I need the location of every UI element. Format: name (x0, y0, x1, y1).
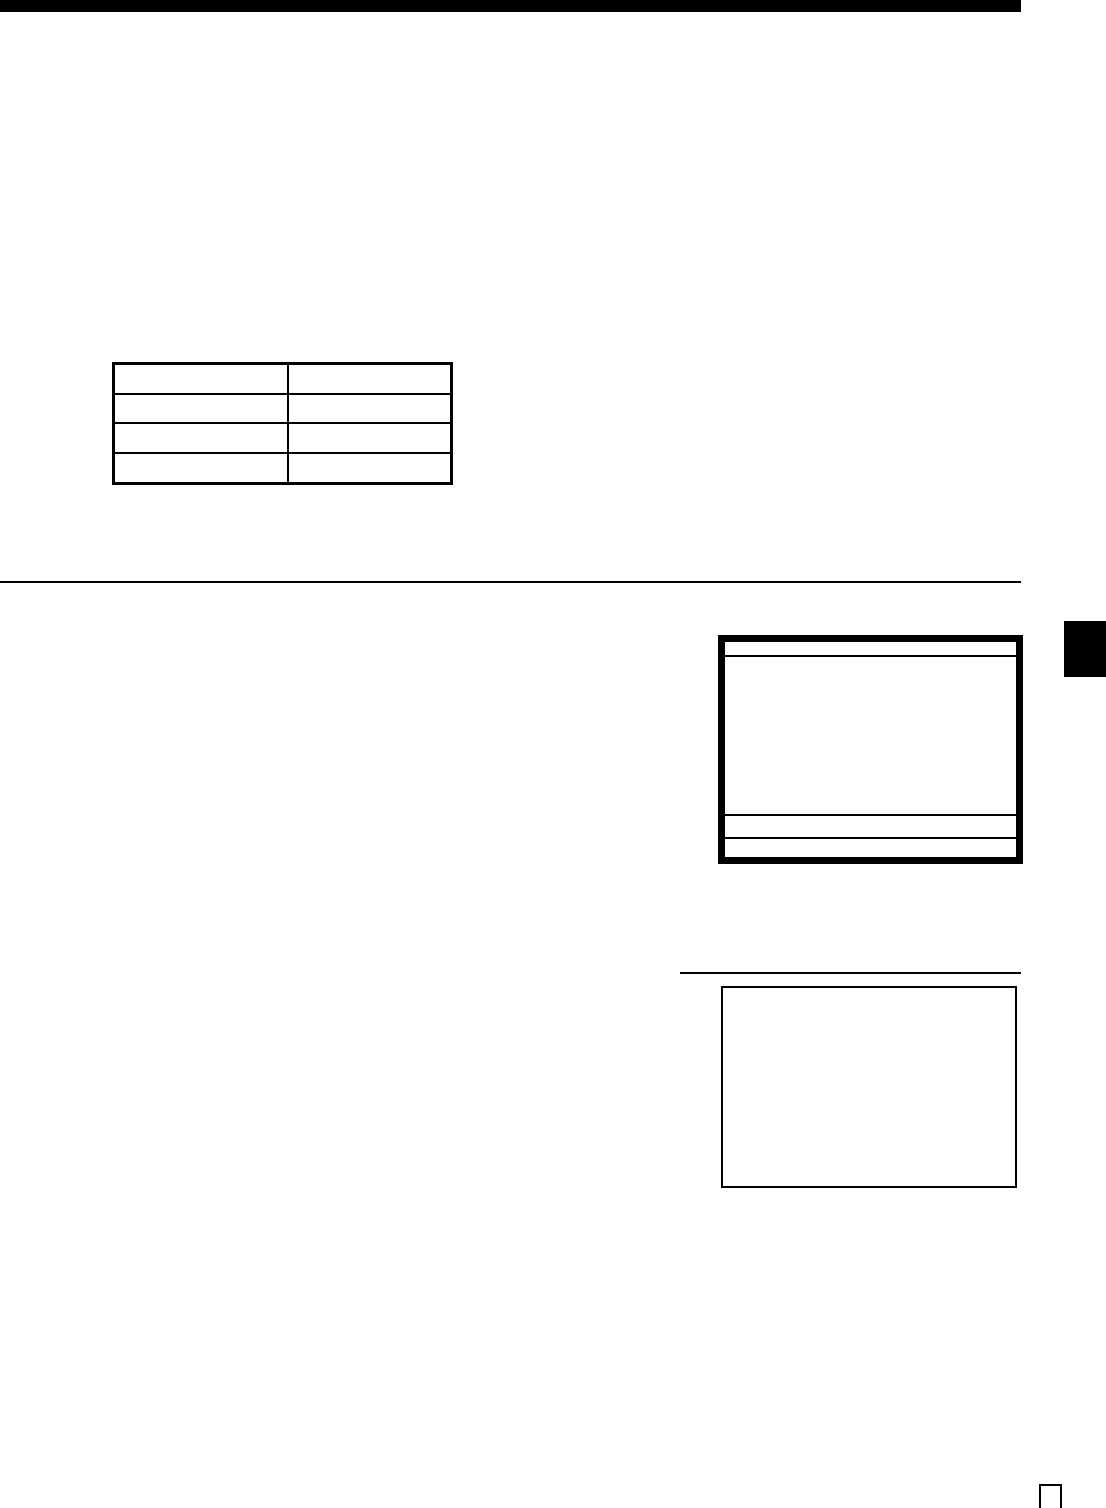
table-cell (288, 364, 452, 394)
table-cell (288, 423, 452, 453)
table-row (114, 364, 452, 394)
menu-screen-frame (718, 635, 1023, 864)
menu-screen-footer-row-2 (725, 837, 1016, 857)
table-cell (114, 423, 289, 453)
table-cell (288, 453, 452, 483)
note-box-rule (680, 972, 1021, 974)
table-row (114, 453, 452, 483)
blank-table-body (114, 364, 452, 484)
table-cell (114, 394, 289, 424)
table-row (114, 394, 452, 424)
table-cell (114, 364, 289, 394)
table-cell (114, 453, 289, 483)
table-row (114, 423, 452, 453)
menu-screen-body (725, 657, 1016, 814)
note-box (721, 986, 1017, 1188)
blank-table (112, 362, 453, 485)
manual-page (0, 0, 1106, 1508)
menu-screen-header-row (725, 642, 1016, 657)
top-banner-bar (0, 0, 1021, 12)
chapter-index-tab (1064, 621, 1106, 677)
menu-screen-footer-row-1 (725, 814, 1016, 837)
section-divider-rule (0, 581, 1021, 583)
table-cell (288, 394, 452, 424)
page-number-box (1039, 1484, 1062, 1508)
